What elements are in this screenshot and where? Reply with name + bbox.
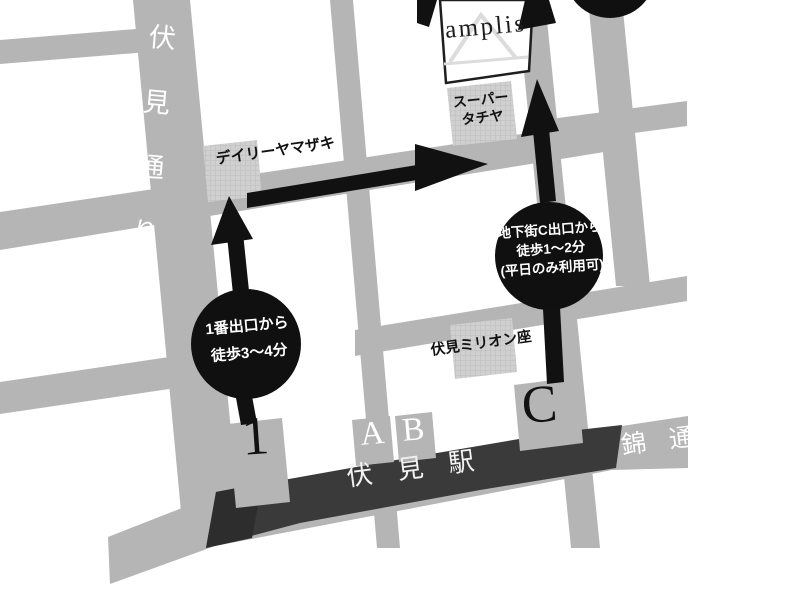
fushimi-dori-char: り — [131, 218, 160, 247]
top-arrow-fragment — [417, 0, 437, 27]
exit-label-1: 1 — [240, 408, 271, 464]
access-map: 伏 見 通 り 錦 通 伏 見 駅 1 A B C デイリーヤマザキ スーパー … — [0, 0, 800, 600]
destination-marker-circle — [565, 0, 655, 18]
route-note-exitc: 地下街C出口から 徒歩1〜2分 (平日のみ利用可) — [483, 216, 619, 283]
fushimi-dori-char: 通 — [136, 154, 165, 183]
route-note-exit1: 1番出口から 徒歩3〜4分 — [186, 308, 310, 372]
road-horizontal-top — [0, 28, 148, 64]
exit-label-a: A — [359, 417, 386, 452]
fushimi-dori-char: 見 — [142, 89, 171, 118]
exit-label-c: C — [520, 378, 559, 433]
fushimi-dori-char: 伏 — [148, 24, 177, 53]
landmark-label-super-tachiya: スーパー タチヤ — [446, 88, 517, 130]
exit-label-b: B — [401, 413, 426, 448]
road-horizontal-left — [0, 356, 176, 414]
map-canvas — [0, 0, 800, 600]
